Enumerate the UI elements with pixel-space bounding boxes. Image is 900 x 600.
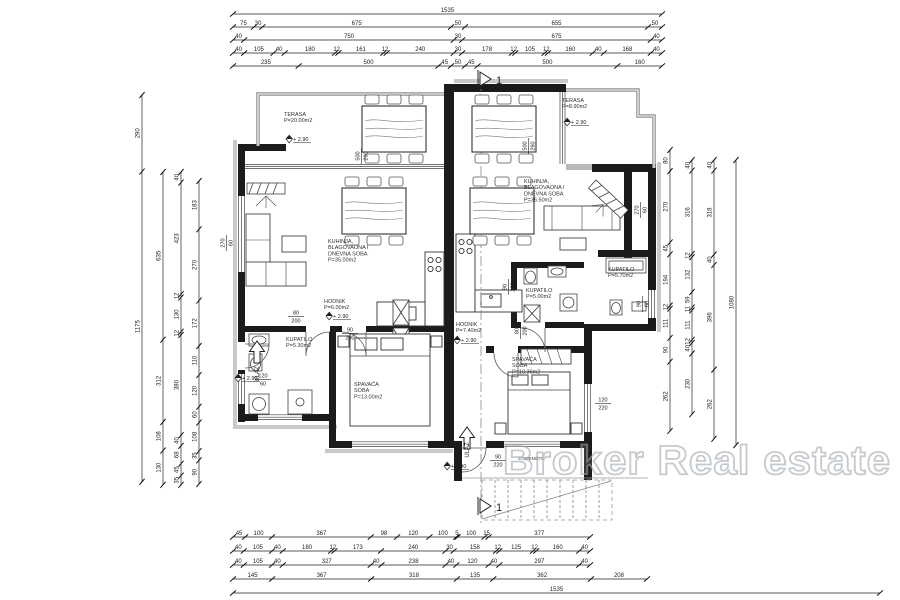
- watermark-text: Broker Real estate: [503, 437, 891, 483]
- chair: [517, 236, 531, 245]
- dining-set: [362, 95, 426, 163]
- dim-label: 105: [253, 559, 264, 565]
- level-text: + 2.90: [451, 464, 466, 470]
- chair: [495, 177, 509, 186]
- dim-label: 100: [438, 531, 449, 537]
- dim-label: 40: [653, 47, 660, 53]
- room-label-hodnik-left: HODNIKP=6.00m2: [324, 299, 349, 311]
- dim-label: 238: [409, 559, 420, 565]
- opening-size: 27060: [635, 202, 649, 218]
- dim-label: 90: [664, 346, 670, 353]
- dim-label: 40: [235, 545, 242, 551]
- dim-label: 40: [581, 545, 588, 551]
- room-label-hodnik-right: HODNIKP=7.40m2: [456, 322, 481, 334]
- level-diamond-icon: [444, 462, 450, 466]
- opening-size-bottom: 60: [229, 240, 235, 246]
- dim-label: 35: [175, 476, 181, 483]
- dim-label: 50: [652, 21, 659, 27]
- dim-label: 40: [235, 559, 242, 565]
- bed-left: [338, 334, 442, 426]
- dim-label: 500: [364, 60, 375, 66]
- dim-label: 675: [551, 34, 562, 40]
- room-label-kupatilo-far-right: KUPATILOP=5.70m2: [608, 267, 635, 279]
- dim-label: 262: [708, 399, 714, 410]
- dim-label: 262: [664, 391, 670, 402]
- sofa-right: [544, 206, 620, 250]
- chair: [409, 95, 423, 104]
- section-marker-bottom: 1: [478, 497, 502, 515]
- chair: [345, 177, 359, 186]
- room-label-terasa-left: TERASAP=20.00m2: [284, 112, 312, 124]
- chair: [389, 177, 403, 186]
- dim-label: 180: [305, 47, 316, 53]
- opening-size-top: 80: [515, 328, 521, 334]
- annotation-ulaz: ULAZ: [255, 366, 261, 382]
- dim-label: 100: [254, 531, 265, 537]
- dim-label: 318: [409, 573, 420, 579]
- terrace-parapets: [258, 90, 654, 168]
- dim-label: 40: [653, 34, 660, 40]
- opening-size-bottom: 220: [598, 406, 607, 412]
- opening-size-bottom: 60: [643, 207, 649, 213]
- dim-label: 40: [274, 559, 281, 565]
- dim-label: 1535: [550, 587, 564, 593]
- dim-label: 40: [581, 559, 588, 565]
- level-text: + 2.90: [293, 137, 308, 143]
- opening-size-top: 500: [523, 141, 529, 150]
- dining-set: [342, 177, 406, 245]
- dim-label: 161: [356, 47, 367, 53]
- dim-label: 108: [157, 431, 163, 442]
- dim-label: 500: [542, 60, 553, 66]
- opening-size-bottom: 260: [364, 151, 370, 160]
- dim-label: 40: [595, 47, 602, 53]
- opening-size-top: 270: [221, 238, 227, 247]
- dim-label: 130: [175, 309, 181, 320]
- dim-label: 377: [534, 531, 545, 537]
- dim-label: 132: [686, 269, 692, 280]
- floor-plan-canvas: 1 1 153575306755065550407503067540401054…: [0, 0, 900, 600]
- dim-label: 59: [686, 296, 692, 303]
- level-diamond-icon: [286, 135, 292, 139]
- room-label-living-left: KUHINJA,BLAGOVAONA IDNEVNA SOBAP=35.00m2: [328, 239, 369, 264]
- opening-size-bottom: 200: [523, 326, 529, 335]
- dim-label: 45: [441, 60, 448, 66]
- dim-label: 327: [322, 559, 333, 565]
- dim-label: 297: [534, 559, 545, 565]
- dim-label: 12: [664, 303, 670, 310]
- dim-label: 160: [565, 47, 576, 53]
- dim-label: 367: [317, 573, 328, 579]
- dim-label: 108: [193, 431, 199, 442]
- dim-label: 120: [408, 531, 419, 537]
- dim-label: 318: [708, 207, 714, 218]
- dim-label: 145: [248, 573, 259, 579]
- dim-label: 45: [236, 531, 243, 537]
- chair: [519, 95, 533, 104]
- dim-label: 270: [193, 259, 199, 270]
- dim-label: 316: [686, 207, 692, 218]
- chair: [497, 95, 511, 104]
- dim-label: 270: [664, 201, 670, 212]
- room-label-kupatilo-left: KUPATILOP=5.30m2: [286, 337, 313, 349]
- level-text: + 2.90: [571, 120, 586, 126]
- dim-label: 12: [175, 292, 181, 299]
- level-diamond-icon: [454, 336, 460, 340]
- dim-label: 30: [455, 34, 462, 40]
- dim-label: 130: [157, 462, 163, 473]
- dim-label: 60: [193, 411, 199, 418]
- room-label-living-right: KUHINJA,BLAGOVAONA IDNEVNA SOBAP=36.50m2: [524, 179, 565, 204]
- opening-size-bottom: 200: [291, 319, 300, 325]
- dim-label: 1080: [730, 295, 736, 309]
- opening-size-top: 80: [293, 311, 299, 317]
- dim-label: 1535: [441, 8, 455, 14]
- dim-label: 750: [344, 34, 355, 40]
- dim-label: 12: [686, 252, 692, 259]
- annotation-ulaz: ULAZ: [465, 442, 471, 458]
- dim-label: 11: [686, 305, 692, 312]
- section-label-bottom: 1: [496, 502, 502, 514]
- dim-label: 50: [455, 60, 462, 66]
- dim-label: 290: [136, 128, 142, 139]
- dim-label: 105: [254, 47, 265, 53]
- dim-label: 75: [240, 21, 247, 27]
- room-label-kupatilo-right: KUPATILOP=5.00m2: [526, 288, 553, 300]
- dim-label: 45: [175, 466, 181, 473]
- dim-label: 1175: [136, 320, 142, 334]
- room-label-terasa-right: TERASAP=8.90m2: [562, 98, 587, 110]
- dim-label: 40: [274, 545, 281, 551]
- dim-label: 655: [551, 21, 562, 27]
- floor-plan-page: 1 1 153575306755065550407503067540401054…: [0, 0, 900, 600]
- opening-size-bottom: 60: [645, 301, 651, 307]
- dim-label: 160: [553, 545, 564, 551]
- dim-label: 40: [235, 34, 242, 40]
- dim-label: 40: [235, 47, 242, 53]
- opening-size: 120220: [595, 398, 611, 412]
- dim-label: 35: [193, 452, 199, 459]
- dim-label: 362: [537, 573, 548, 579]
- dim-label: 240: [408, 545, 419, 551]
- chair: [473, 236, 487, 245]
- dim-label: 45: [664, 244, 670, 251]
- dim-label: 396: [708, 312, 714, 323]
- opening-size-top: 120: [598, 398, 607, 404]
- chair: [475, 95, 489, 104]
- opening-size-bottom: 260: [531, 141, 537, 150]
- dim-label: 12: [175, 329, 181, 336]
- dim-label: 194: [664, 274, 670, 285]
- level-text: + 2.90: [333, 314, 348, 320]
- stairs: [462, 478, 648, 520]
- dim-label: 230: [686, 378, 692, 389]
- radiator-left: [247, 183, 285, 208]
- opening-size-top: 90: [637, 301, 643, 307]
- room-label-spavaca-right: SPAVAĆASOBAP=10.36m2: [512, 356, 540, 375]
- dim-label: 12: [686, 337, 692, 344]
- dim-label: 40: [175, 173, 181, 180]
- chair: [389, 236, 403, 245]
- dim-label: 158: [470, 545, 481, 551]
- dim-label: 183: [193, 199, 199, 210]
- dim-label: 367: [316, 531, 327, 537]
- dim-label: 110: [193, 355, 199, 365]
- dim-label: 635: [157, 250, 163, 261]
- opening-size-bottom: 200: [511, 282, 517, 291]
- opening-size-top: 90: [347, 328, 353, 334]
- dim-label: 98: [381, 531, 388, 537]
- dim-label: 90: [193, 468, 199, 475]
- dim-label: 30: [455, 47, 462, 53]
- dim-label: 180: [302, 545, 313, 551]
- dim-label: 423: [175, 233, 181, 244]
- dim-label: 178: [482, 47, 493, 53]
- dim-label: 312: [157, 375, 163, 386]
- dim-label: 135: [470, 573, 481, 579]
- dim-label: 40: [491, 559, 498, 565]
- dining-set: [472, 95, 536, 163]
- dim-label: 120: [193, 385, 199, 396]
- dim-label: 100: [466, 531, 477, 537]
- chair: [475, 154, 489, 163]
- opening-size: 27060: [221, 235, 235, 251]
- chair: [387, 95, 401, 104]
- dim-label: 40: [175, 436, 181, 443]
- dim-label: 111: [664, 318, 670, 328]
- opening-size-top: 90: [495, 455, 501, 461]
- dim-label: 105: [525, 47, 536, 53]
- chair: [495, 236, 509, 245]
- dim-label: 80: [664, 157, 670, 164]
- chair: [365, 95, 379, 104]
- sofa-left: [246, 214, 306, 286]
- dim-label: 240: [415, 47, 426, 53]
- dim-label: 105: [253, 545, 264, 551]
- chair: [409, 154, 423, 163]
- dim-label: 208: [614, 573, 625, 579]
- dim-label: 380: [175, 379, 181, 390]
- dim-label: 160: [635, 60, 646, 66]
- dim-label: 173: [353, 545, 364, 551]
- dim-label: 30: [255, 21, 262, 27]
- dim-label: 40: [686, 161, 692, 168]
- opening-size: 80200: [288, 311, 304, 325]
- dim-label: 68: [175, 451, 181, 458]
- dim-label: 172: [193, 318, 199, 329]
- bed-right: [495, 372, 582, 434]
- dim-label: 50: [455, 21, 462, 27]
- dim-label: 235: [261, 60, 272, 66]
- dim-label: 40: [708, 256, 714, 263]
- chair: [519, 154, 533, 163]
- section-label-top: 1: [496, 75, 502, 87]
- dim-label: 168: [622, 47, 633, 53]
- dim-label: 125: [511, 545, 522, 551]
- dim-label: 40: [708, 161, 714, 168]
- dim-label: 40: [373, 559, 380, 565]
- dim-label: 120: [467, 559, 478, 565]
- opening-size-bottom: 220: [493, 463, 502, 469]
- dim-label: 40: [686, 344, 692, 351]
- chair: [473, 177, 487, 186]
- opening-size-top: 90: [503, 284, 509, 290]
- level-text: + 2.90: [461, 338, 476, 344]
- dim-label: 111: [686, 320, 692, 330]
- opening-size-bottom: 200: [345, 336, 354, 342]
- chair: [367, 177, 381, 186]
- kitchen-left: [377, 252, 444, 326]
- dim-label: 30: [446, 545, 453, 551]
- level-diamond-icon: [326, 312, 332, 316]
- chair: [387, 154, 401, 163]
- chair: [367, 236, 381, 245]
- opening-size-top: 500: [356, 151, 362, 160]
- dim-label: 675: [352, 21, 363, 27]
- opening-size-top: 270: [635, 205, 641, 214]
- dim-label: 45: [468, 60, 475, 66]
- dim-label: 40: [276, 47, 283, 53]
- dim-label: 40: [448, 559, 455, 565]
- chair: [497, 154, 511, 163]
